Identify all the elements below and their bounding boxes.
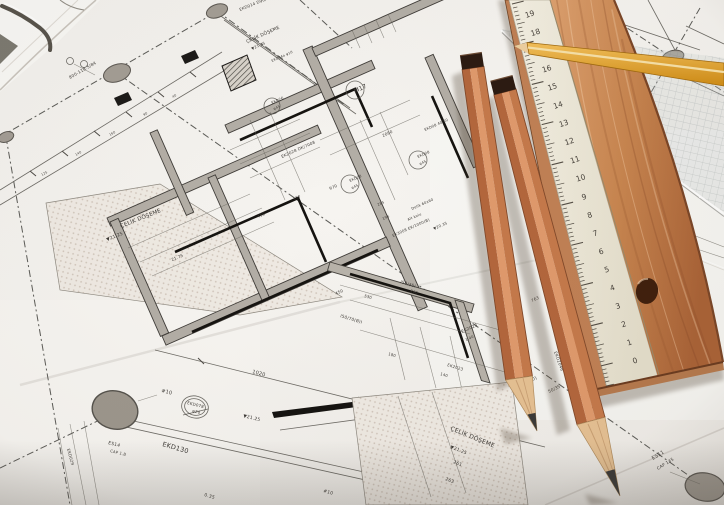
vignette [0, 0, 724, 505]
scene-svg: EKD014 D90/75ÇELİK DÖŞEME▼21.25800-118.5… [0, 0, 724, 505]
photo-blueprint-desk: EKD014 D90/75ÇELİK DÖŞEME▼21.25800-118.5… [0, 0, 724, 505]
